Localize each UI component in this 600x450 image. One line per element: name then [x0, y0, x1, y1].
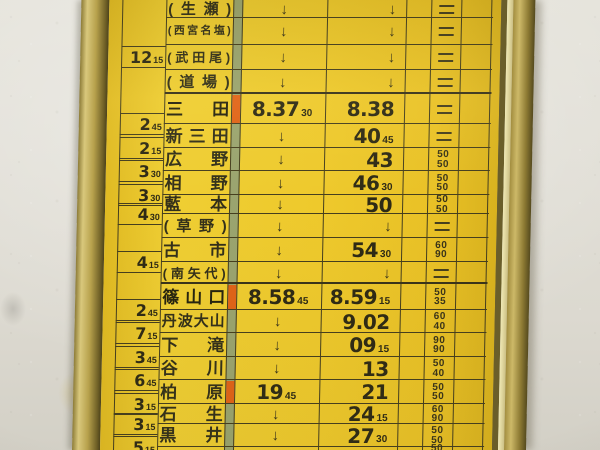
pass-arrow-icon: ↓ [275, 265, 283, 282]
run-time-seconds: 30 [151, 169, 161, 179]
run-time-minutes: 5 [133, 438, 145, 450]
departure-time-cell: 8.38 [325, 94, 405, 124]
arrival-time-cell: ↓ [241, 0, 327, 18]
wall-smudge [0, 292, 26, 326]
no-stop-dash [433, 269, 448, 271]
pass-arrow-icon: ↓ [277, 151, 285, 168]
station-name: 石生 [160, 406, 223, 423]
pass-arrow-icon: ↓ [273, 337, 281, 354]
pass-arrow-icon: ↓ [276, 196, 284, 213]
speed-value: 35 [434, 297, 446, 307]
departure-time-cell: ↓ [327, 0, 406, 18]
pass-arrow-icon: ↓ [388, 49, 396, 66]
station-name-cell: 藍本 [162, 195, 229, 214]
speed-limit-cell: 5050 [427, 195, 457, 214]
run-time-minutes: 3 [133, 415, 145, 434]
run-time-seconds: 45 [147, 355, 157, 365]
speed-value: 40 [433, 322, 445, 332]
departure-time-cell: ↓ [325, 70, 405, 94]
timetable-row: 相野↓46305050 [105, 171, 498, 195]
station-name-cell: 古市 [161, 238, 229, 262]
run-time-cell: 430 [118, 203, 162, 225]
station-name: 丹波大山 [162, 314, 225, 329]
station-name: (草野) [164, 219, 227, 234]
station-name-cell: 新三田 [163, 124, 231, 148]
time-minutes: 40 [353, 124, 380, 148]
station-name-cell: (草野) [161, 214, 229, 238]
time-seconds: 30 [376, 434, 387, 445]
no-stop-dash [436, 132, 451, 134]
no-stop-dash [437, 78, 452, 80]
no-stop-dash [436, 139, 451, 141]
speed-limit-cell: 6040 [424, 310, 454, 333]
time-seconds: 15 [378, 344, 389, 355]
station-name-cell: 柏原 [158, 380, 226, 404]
no-stop-dash [434, 229, 449, 231]
run-time-cell: 645 [114, 369, 158, 391]
departure-time-cell: 5430 [322, 238, 402, 262]
run-time-cell: 315 [113, 413, 157, 435]
time-seconds: 30 [381, 182, 392, 193]
departure-time-cell: 0915 [320, 333, 400, 357]
pass-arrow-icon: ↓ [383, 265, 391, 282]
run-time-seconds: 30 [150, 193, 160, 203]
run-time-minutes: 3 [138, 186, 150, 205]
time-seconds: 15 [379, 296, 390, 307]
pass-arrow-icon: ↓ [280, 23, 288, 40]
pass-arrow-icon: ↓ [277, 175, 285, 192]
arrival-time-cell: 8.3730 [239, 94, 326, 124]
time-minutes: 8.37 [252, 97, 300, 121]
time-minutes: 9.02 [342, 310, 390, 334]
departure-time-cell: ↓ [321, 262, 400, 284]
station-name: 柏原 [160, 384, 223, 401]
timetable-row: (南矢代)↓↓ [103, 262, 495, 284]
run-time-seconds: 15 [151, 146, 161, 156]
time-seconds: 30 [301, 108, 312, 119]
station-name-cell: 谷川 [158, 357, 225, 380]
pass-arrow-icon: ↓ [278, 128, 286, 145]
time-seconds: 30 [380, 249, 391, 260]
time-seconds: 15 [376, 413, 387, 424]
departure-time-cell: ↓ [322, 214, 402, 238]
pass-arrow-icon: ↓ [272, 406, 280, 423]
arrival-time-cell: ↓ [235, 262, 321, 284]
speed-limit-cell [428, 124, 459, 148]
arrival-time-cell: ↓ [240, 45, 327, 70]
station-name-cell: 広野 [163, 148, 230, 171]
timetable-row: 下滝↓09159090 [102, 333, 495, 357]
pass-arrow-icon: ↓ [273, 360, 281, 377]
speed-limit-cell: 9090 [424, 333, 455, 357]
run-time-seconds: 15 [153, 55, 163, 65]
timetable-row: 古市↓54306090 [104, 238, 497, 262]
station-name: 藍本 [164, 196, 227, 213]
time-seconds: 45 [297, 296, 308, 307]
pass-arrow-icon: ↓ [274, 313, 282, 330]
station-name-cell: (生瀬) [166, 0, 233, 18]
arrival-time-cell: ↓ [234, 310, 320, 333]
run-time-minutes: 3 [138, 162, 150, 181]
run-time-cell: 415 [117, 251, 161, 273]
station-name: 広野 [165, 151, 228, 168]
speed-limit-cell [430, 45, 461, 70]
run-time-cell: 345 [115, 346, 159, 368]
station-name: 相野 [164, 175, 227, 192]
run-time-seconds: 15 [147, 331, 157, 341]
speed-value: 90 [435, 250, 447, 260]
speed-value: 50 [431, 444, 443, 450]
time-minutes: 13 [362, 357, 389, 381]
timetable-row: (生瀬)↓↓ [109, 0, 501, 18]
timetable-row: 谷川↓135040 [101, 357, 493, 380]
time-minutes: 27 [347, 424, 374, 448]
run-time-cell: 715 [115, 322, 159, 344]
no-stop-dash [439, 12, 454, 14]
speed-limit-cell: 5050 [427, 171, 458, 195]
departure-time-cell: 4630 [323, 171, 403, 195]
arrival-time-cell: ↓ [238, 148, 324, 171]
run-time-seconds: 45 [146, 378, 156, 388]
arrival-time-cell: ↓ [233, 357, 319, 380]
station-name: (西宮名塩) [168, 26, 231, 37]
time-minutes: 09 [349, 333, 376, 357]
run-time-seconds: 45 [152, 122, 162, 132]
pass-arrow-icon: ↓ [389, 1, 397, 18]
run-time-minutes: 6 [134, 371, 146, 390]
timetable-row: 柏原1945215050 [101, 380, 494, 404]
station-name-cell: 相野 [162, 171, 230, 195]
speed-limit-cell: 5035 [425, 284, 456, 310]
station-name: 三田 [166, 101, 229, 118]
pass-arrow-icon: ↓ [388, 23, 396, 40]
station-name: (南矢代) [163, 267, 226, 280]
time-minutes: 54 [351, 238, 378, 262]
no-stop-dash [438, 53, 453, 55]
arrival-time-cell: ↓ [232, 424, 318, 447]
time-seconds: 45 [382, 135, 393, 146]
time-minutes: 43 [366, 148, 393, 172]
no-stop-dash [433, 276, 448, 278]
arrival-time-cell: ↓ [239, 70, 326, 94]
timetable-row: 三田8.37308.38 [107, 94, 500, 124]
no-stop-dash [434, 222, 449, 224]
speed-value: 50 [437, 160, 449, 170]
no-stop-dash [437, 112, 452, 114]
speed-limit-cell [425, 262, 455, 284]
timetable-row: (西宮名塩)↓↓ [108, 18, 501, 45]
speed-value: 50 [432, 392, 444, 402]
departure-time-cell: 4045 [324, 124, 404, 148]
arrival-time-cell: ↓ [236, 214, 323, 238]
station-name: 新三田 [165, 128, 228, 145]
station-name: (道場) [167, 75, 230, 90]
timetable-row: (道場)↓↓ [107, 70, 500, 94]
departure-time-cell: 43 [324, 148, 403, 171]
station-name-cell: (南矢代) [160, 262, 227, 284]
station-name-cell: 石生 [158, 404, 225, 424]
speed-limit-cell: 5050 [428, 148, 458, 171]
departure-time-cell: 21 [319, 380, 399, 404]
run-time-minutes: 3 [135, 348, 147, 367]
arrival-time-cell: ↓ [233, 404, 319, 424]
time-minutes: 8.58 [248, 285, 296, 309]
pass-arrow-icon: ↓ [279, 49, 287, 66]
pass-arrow-icon: ↓ [387, 74, 395, 91]
departure-time-cell: ↓ [326, 45, 406, 70]
station-name-cell: (西宮名塩) [165, 18, 233, 45]
station-name-cell: 丹波大山 [159, 310, 226, 333]
speed-limit-cell: 5050 [423, 380, 454, 404]
station-name: 黒井 [159, 427, 222, 444]
station-name: (生瀬) [168, 2, 231, 17]
arrival-time-cell: 1945 [233, 380, 320, 404]
run-time-seconds: 15 [145, 422, 155, 432]
time-seconds: 45 [285, 391, 296, 402]
pass-arrow-icon: ↓ [384, 218, 392, 235]
timetable-row: 広野↓435050 [106, 148, 498, 171]
timetable-row: 新三田↓4045 [106, 124, 499, 148]
run-time-seconds: 15 [149, 260, 159, 270]
speed-limit-cell: 6090 [423, 404, 453, 424]
station-name: 谷川 [161, 360, 224, 377]
station-name: 下滝 [161, 337, 224, 354]
time-minutes: 19 [256, 380, 283, 404]
no-stop-dash [438, 60, 453, 62]
run-time-seconds: 15 [145, 445, 155, 450]
pass-arrow-icon: ↓ [271, 427, 279, 444]
station-name-cell: 黒井 [157, 424, 224, 447]
no-stop-dash [437, 85, 452, 87]
station-name: (武田尾) [167, 51, 230, 64]
arrival-time-cell: ↓ [238, 124, 325, 148]
departure-time-cell: 2730 [318, 424, 397, 447]
run-time-seconds: 30 [150, 212, 160, 222]
timetable-row: (草野)↓↓ [104, 214, 497, 238]
run-time-minutes: 2 [139, 139, 151, 158]
speed-limit-cell [430, 18, 461, 45]
speed-value: 90 [433, 345, 445, 355]
time-minutes: 8.59 [329, 285, 377, 309]
speed-value: 50 [436, 183, 448, 193]
departure-time-cell: 8.5915 [321, 284, 401, 310]
run-time-cell: 245 [120, 113, 164, 135]
run-time-cell: 1215 [121, 46, 165, 68]
run-time-minutes: 3 [134, 395, 146, 414]
speed-limit-cell: 6090 [426, 238, 457, 262]
arrival-time-cell: ↓ [240, 18, 327, 45]
station-name-cell: 下滝 [159, 333, 227, 357]
no-stop-dash [438, 34, 453, 36]
departure-time-cell: 50 [323, 195, 402, 214]
run-time-cell: 245 [116, 299, 160, 321]
speed-limit-cell [429, 70, 460, 94]
departure-time-cell: 9.02 [320, 310, 399, 333]
run-time-minutes: 4 [137, 253, 149, 272]
run-time-seconds: 45 [148, 308, 158, 318]
station-name-cell: (道場) [164, 70, 232, 94]
speed-limit-cell [429, 94, 460, 124]
arrival-time-cell: 8.5845 [235, 284, 322, 310]
timetable-row: 藍本↓505050 [105, 195, 497, 214]
no-stop-dash [437, 105, 452, 107]
arrival-time-cell: ↓ [237, 171, 324, 195]
station-name-cell: (武田尾) [165, 45, 233, 70]
timetable-board: (生瀬)↓↓(西宮名塩)↓↓(武田尾)↓↓(道場)↓↓三田8.37308.38新… [72, 0, 535, 450]
timetable-row: 丹波大山↓9.026040 [102, 310, 494, 333]
run-time-cell: 515 [113, 436, 157, 450]
timetable-row: 石生↓24156090 [101, 404, 493, 424]
run-time-seconds: 15 [146, 402, 156, 412]
run-time-cell: 330 [119, 160, 163, 182]
departure-time-cell: ↓ [326, 18, 406, 45]
run-time-minutes: 2 [136, 301, 148, 320]
station-name: 篠山口 [162, 289, 225, 306]
no-stop-dash [439, 5, 454, 7]
speed-value: 40 [432, 369, 444, 379]
arrival-time-cell: ↓ [237, 195, 323, 214]
arrival-time-cell: ↓ [236, 238, 323, 262]
run-time-cell: 315 [114, 393, 158, 415]
timetable-row: (武田尾)↓↓ [108, 45, 501, 70]
run-time-minutes: 12 [130, 48, 153, 67]
timetable-photo: (生瀬)↓↓(西宮名塩)↓↓(武田尾)↓↓(道場)↓↓三田8.37308.38新… [0, 0, 600, 450]
timetable-row: 篠山口8.58458.59155035 [103, 284, 496, 310]
station-name: 古市 [163, 242, 226, 259]
run-time-minutes: 2 [139, 115, 151, 134]
speed-limit-cell [431, 0, 461, 18]
station-name-cell: 三田 [164, 94, 232, 124]
pass-arrow-icon: ↓ [280, 1, 288, 18]
speed-limit-cell: 5040 [423, 357, 453, 380]
pass-arrow-icon: ↓ [276, 218, 284, 235]
speed-limit-cell [426, 214, 457, 238]
departure-time-cell: 2415 [319, 404, 398, 424]
run-time-minutes: 4 [138, 205, 150, 224]
departure-time-cell: 13 [319, 357, 398, 380]
pass-arrow-icon: ↓ [279, 74, 287, 91]
time-minutes: 8.38 [347, 97, 395, 121]
pass-arrow-icon: ↓ [275, 242, 283, 259]
timetable-card: (生瀬)↓↓(西宮名塩)↓↓(武田尾)↓↓(道場)↓↓三田8.37308.38新… [100, 0, 503, 450]
no-stop-dash [438, 27, 453, 29]
station-name-cell: 篠山口 [160, 284, 228, 310]
time-minutes: 46 [352, 171, 379, 195]
time-minutes: 21 [361, 380, 388, 404]
run-time-cell: 215 [119, 137, 163, 159]
run-time-minutes: 7 [135, 324, 147, 343]
arrival-time-cell: ↓ [234, 333, 321, 357]
